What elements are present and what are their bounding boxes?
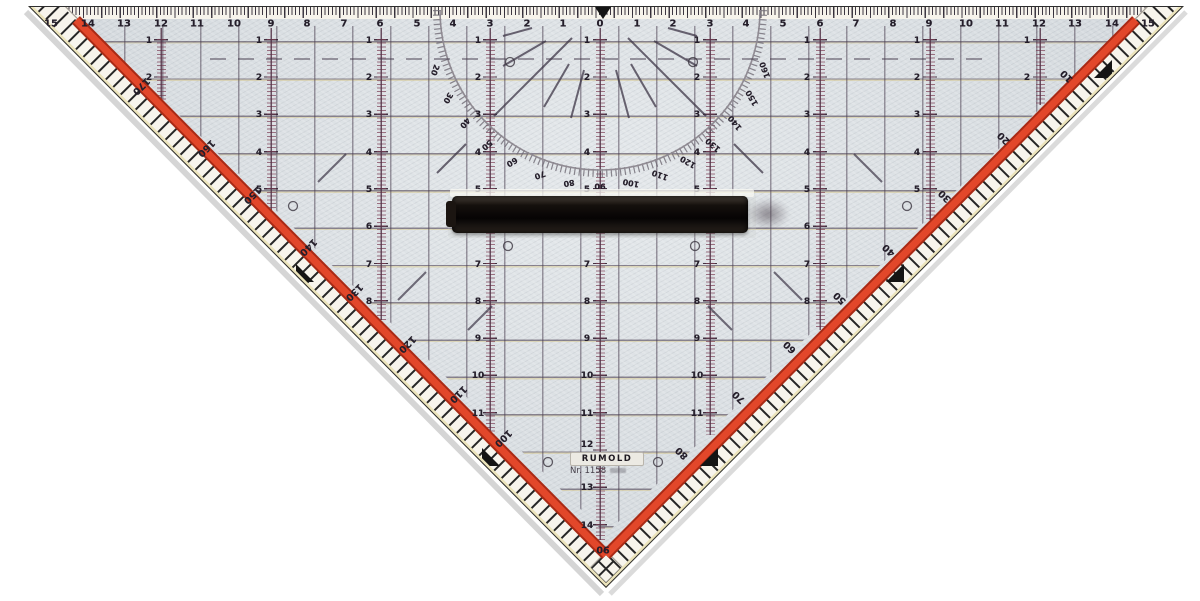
grid-row-label: 4 xyxy=(914,148,920,158)
top-scale-label: 1 xyxy=(634,19,641,30)
grid-row-label: 7 xyxy=(694,260,700,270)
top-scale-label: 15 xyxy=(1141,19,1155,30)
grid-row-label: 2 xyxy=(584,73,590,83)
grid-row-label: 3 xyxy=(584,110,590,120)
top-scale-label: 12 xyxy=(154,19,168,30)
top-scale-label: 13 xyxy=(117,19,131,30)
model-number: Nr. 1158 xyxy=(570,466,680,476)
grid-row-label: 1 xyxy=(256,36,262,46)
grid-row-label: 9 xyxy=(584,334,590,344)
grid-row-label: 1 xyxy=(475,36,481,46)
grid-row-label: 2 xyxy=(804,73,810,83)
top-scale-label: 9 xyxy=(268,19,275,30)
top-scale-label: 10 xyxy=(959,19,973,30)
grid-row-label: 4 xyxy=(584,148,590,158)
top-scale-label: 6 xyxy=(817,19,824,30)
top-scale-label: 11 xyxy=(190,19,204,30)
vertex-degree-label: 90 xyxy=(596,544,609,555)
grid-row-label: 9 xyxy=(694,334,700,344)
grid-row-label: 7 xyxy=(475,260,481,270)
top-scale-label: 4 xyxy=(450,19,457,30)
grid-row-label: 1 xyxy=(146,36,152,46)
top-scale-label: 3 xyxy=(487,19,494,30)
grid-row-label: 5 xyxy=(366,185,372,195)
handle xyxy=(452,196,748,233)
brand-label: RUMOLD xyxy=(570,452,644,466)
grid-row-label: 7 xyxy=(804,260,810,270)
grid-row-label: 12 xyxy=(581,440,594,450)
top-scale-label: 7 xyxy=(853,19,860,30)
grid-row-label: 1 xyxy=(804,36,810,46)
grid-row-label: 13 xyxy=(581,483,594,493)
grid-row-label: 4 xyxy=(256,148,262,158)
grid-row-label: 14 xyxy=(581,521,594,531)
grid-row-label: 8 xyxy=(584,297,590,307)
protractor-degree-label: 80 xyxy=(563,178,576,189)
top-scale-label: 10 xyxy=(227,19,241,30)
grid-row-label: 10 xyxy=(581,371,594,381)
grid-row-label: 6 xyxy=(804,222,810,232)
grid-row-label: 3 xyxy=(366,110,372,120)
top-scale-label: 8 xyxy=(304,19,311,30)
grid-row-label: 2 xyxy=(475,73,481,83)
grid-row-label: 4 xyxy=(804,148,810,158)
grid-row-label: 11 xyxy=(472,409,485,419)
grid-row-label: 8 xyxy=(366,297,372,307)
brand-text: RUMOLD xyxy=(582,454,633,464)
grid-row-label: 4 xyxy=(366,148,372,158)
grid-row-label: 1 xyxy=(366,36,372,46)
grid-row-label: 1 xyxy=(1024,36,1030,46)
grid-row-label: 4 xyxy=(694,148,700,158)
grid-row-label: 4 xyxy=(475,148,481,158)
grid-row-label: 9 xyxy=(475,334,481,344)
grid-row-label: 2 xyxy=(256,73,262,83)
grid-row-label: 2 xyxy=(1024,73,1030,83)
grid-row-label: 3 xyxy=(804,110,810,120)
grid-row-label: 11 xyxy=(581,409,594,419)
grid-row-label: 1 xyxy=(914,36,920,46)
top-scale-label: 5 xyxy=(780,19,787,30)
top-scale-label: 2 xyxy=(670,19,677,30)
top-scale-label: 14 xyxy=(81,19,95,30)
grid-row-label: 11 xyxy=(691,409,704,419)
top-scale-label: 0 xyxy=(597,19,604,30)
grid-row-label: 1 xyxy=(694,36,700,46)
grid-row-label: 10 xyxy=(472,371,485,381)
top-scale-label: 3 xyxy=(707,19,714,30)
top-scale-label: 2 xyxy=(524,19,531,30)
grid-row-label: 5 xyxy=(804,185,810,195)
top-scale-label: 14 xyxy=(1105,19,1119,30)
handle-end-smudge xyxy=(746,198,790,230)
grid-row-label: 8 xyxy=(694,297,700,307)
grid-row-label: 3 xyxy=(914,110,920,120)
grid-row-label: 8 xyxy=(804,297,810,307)
grid-row-label: 8 xyxy=(475,297,481,307)
grid-row-label: 3 xyxy=(694,110,700,120)
grid-row-label: 6 xyxy=(366,222,372,232)
grid-row-label: 2 xyxy=(366,73,372,83)
grid-row-label: 3 xyxy=(475,110,481,120)
grid-row-label: 3 xyxy=(256,110,262,120)
grid-row-label: 7 xyxy=(584,260,590,270)
grid-row-label: 10 xyxy=(691,371,704,381)
top-scale-label: 5 xyxy=(414,19,421,30)
top-scale-label: 6 xyxy=(377,19,384,30)
top-scale-label: 4 xyxy=(743,19,750,30)
grid-row-label: 7 xyxy=(366,260,372,270)
top-scale-label: 7 xyxy=(341,19,348,30)
grid-row-label: 2 xyxy=(694,73,700,83)
photo-of-rumold-drafting-triangle: 1514131211109876543210123456789101112131… xyxy=(0,0,1200,601)
top-scale-label: 13 xyxy=(1068,19,1082,30)
model-number-text: Nr. 1158 xyxy=(570,466,606,476)
top-scale-label: 8 xyxy=(890,19,897,30)
top-scale-label: 11 xyxy=(995,19,1009,30)
top-scale-label: 12 xyxy=(1032,19,1046,30)
illegible-fine-print xyxy=(610,468,626,473)
top-scale-label: 9 xyxy=(926,19,933,30)
grid-row-label: 2 xyxy=(914,73,920,83)
top-scale-label: 1 xyxy=(560,19,567,30)
grid-row-label: 1 xyxy=(584,36,590,46)
grid-row-label: 5 xyxy=(914,185,920,195)
